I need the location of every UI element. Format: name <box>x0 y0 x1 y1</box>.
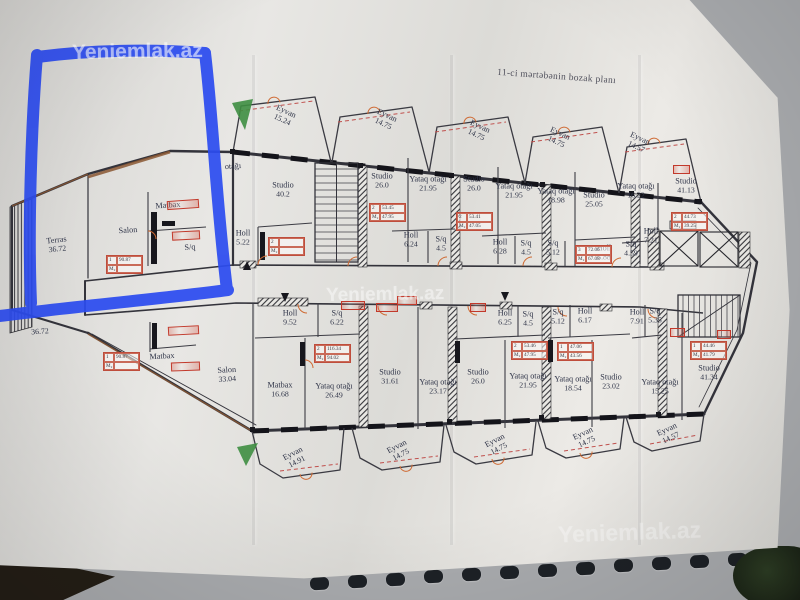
watermark: Yeniemlak.az <box>326 283 445 307</box>
photo-of-floor-plan: Terras36.72SalonMatbaxS/qotağıHoll5.22Ey… <box>0 0 800 600</box>
watermark: Yeniemlak.az <box>558 517 702 549</box>
watermark: Yeniemlak.az <box>72 39 203 65</box>
